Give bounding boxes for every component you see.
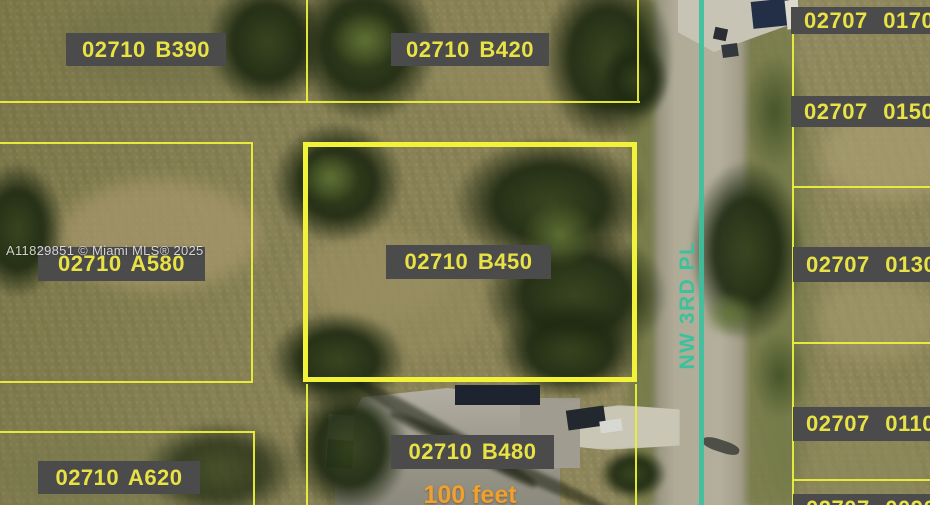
vehicle-on-road — [713, 27, 728, 41]
parcel-label-a620: 02710 A620 — [38, 461, 200, 494]
street-name-label: NW 3RD PL — [676, 220, 702, 390]
tree-cluster — [600, 40, 670, 120]
parcel-label-b420: 02710 B420 — [391, 33, 549, 66]
tree-highlight — [700, 290, 760, 340]
parcel-line — [251, 142, 253, 383]
parcel-label-b480: 02710 B480 — [391, 435, 554, 469]
parcel-label-0150: 02707 0150 — [791, 96, 930, 127]
parcel-line — [792, 342, 930, 344]
parcel-line — [792, 479, 930, 481]
parcel-line — [0, 101, 640, 103]
mls-watermark: A11829851 © Miami MLS® 2025 — [6, 243, 204, 258]
parcel-label-0170: 02707 0170 — [791, 7, 930, 34]
parcel-label-0130: 02707 0130 — [793, 247, 930, 282]
parcel-line — [306, 384, 308, 505]
dirt-patch — [810, 280, 930, 360]
aerial-parcel-map: NW 3RD PL 02710 B390 02710 B420 02710 A5… — [0, 0, 930, 505]
tree-highlight — [330, 10, 400, 70]
parcel-line — [0, 381, 253, 383]
parcel-line — [635, 384, 637, 505]
parcel-line — [306, 0, 308, 101]
parcel-label-b390: 02710 B390 — [66, 33, 226, 66]
parcel-label-b450: 02710 B450 — [386, 245, 551, 279]
parcel-line — [792, 186, 930, 188]
parcel-label-0110: 02707 0110 — [793, 407, 930, 441]
scale-label: 100 feet — [400, 481, 540, 505]
parcel-line — [637, 0, 639, 101]
palm-tree — [598, 448, 668, 500]
parcel-line — [0, 142, 253, 144]
vehicle-on-road — [721, 43, 739, 58]
parcel-label-0090: 02707 0090 — [793, 494, 930, 505]
parcel-line — [0, 431, 255, 433]
parcel-line — [253, 431, 255, 505]
